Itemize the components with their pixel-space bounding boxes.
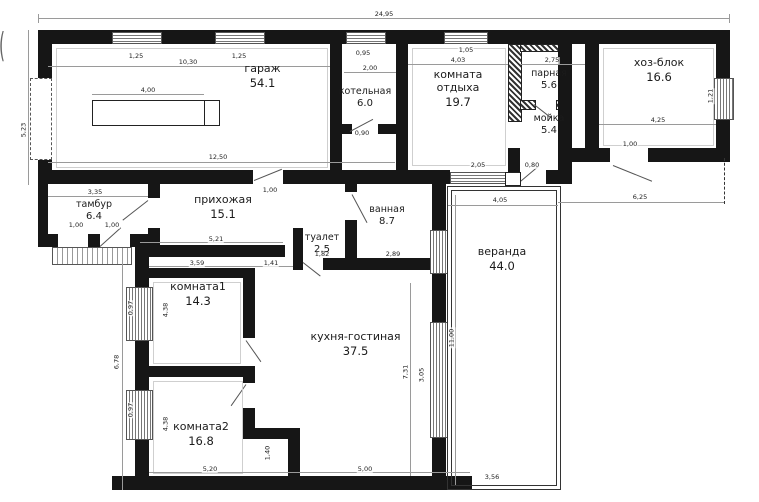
dim-label: 5,20 [202,466,218,473]
room-area: 2.5 [296,244,348,255]
wall-garage-right [330,44,342,184]
dim-label: 1,25 [128,53,144,60]
room-name: гараж [210,62,315,75]
dim-label: 0,97 [128,402,135,418]
wall-tambur-divider [148,184,160,198]
dim-label: 2,75 [544,57,560,64]
room-label-tambur: тамбур 6.4 [58,199,130,222]
dim-line [48,196,148,197]
wall-mid [283,170,450,184]
dim-label: 2,00 [362,65,378,72]
door-leaf [505,172,521,186]
door-swing [246,340,262,362]
wall-komnata2-step-v [288,439,300,482]
roof-overhang-dashed-line [724,158,725,204]
wall-mid [546,170,572,184]
room-name: туалет [296,232,348,243]
room-area: 5.4 [514,125,584,136]
room-name: комната1 [152,280,244,293]
room-area: 6.4 [58,211,130,222]
wall-parnaya-top-hatched [520,44,560,52]
wall-mid [38,170,253,184]
dim-label: 12,50 [208,154,229,161]
window [430,230,448,274]
dim-label: 11,00 [449,328,456,349]
dim-line [558,202,724,203]
arc-mark: ( [0,26,5,66]
dim-label: 0,95 [355,50,371,57]
dim-line [408,64,508,65]
dim-label: 4,25 [650,117,666,124]
window [346,32,386,44]
wall-komnata1-right [243,268,255,338]
room-area: 14.3 [152,294,244,308]
dim-label: 7,31 [403,364,410,380]
dim-label: 1,00 [622,141,638,148]
room-area: 16.6 [618,70,700,84]
room-label-boiler: котельная 6.0 [330,86,400,109]
dim-label: 1,05 [458,47,474,54]
dim-label: 2,05 [470,162,486,169]
dim-line [448,205,558,206]
dim-label: 4,05 [492,197,508,204]
dim-label: 1,40 [265,445,272,461]
room-label-moika: мойка 5.4 [514,113,584,136]
room-name: комната отдыха [422,68,494,94]
dim-tick [729,14,730,23]
room-name: веранда [464,245,540,258]
dim-label: 1,25 [231,53,247,60]
wall-tambur-bottom [88,234,100,247]
dim-line [122,252,123,490]
dim-label: 2,89 [385,251,401,258]
window [215,32,265,44]
dim-label: 4,00 [140,87,156,94]
garage-gate [30,78,52,160]
room-label-garage: гараж 54.1 [210,62,315,90]
dim-line [344,72,396,73]
wall-boiler-bottom [378,124,408,134]
room-label-rest: комната отдыха 19.7 [422,68,494,109]
window [430,322,448,438]
room-label-tualet: туалет 2.5 [296,232,348,255]
wall-komnata1-bottom [135,366,255,377]
dim-line [149,472,470,473]
dim-label: 10,30 [178,59,199,66]
window [714,78,734,120]
window [112,32,162,44]
wall-hozblok-left [585,44,599,148]
window [450,172,510,184]
room-name: котельная [330,86,400,97]
door-swing [303,262,321,276]
wall-komnata1-top [145,268,250,278]
room-name: тамбур [58,199,130,210]
room-name: хоз-блок [618,56,700,69]
dim-line [92,94,204,95]
wall-komnata2-step [243,428,300,439]
dim-label: 0,97 [128,300,135,316]
dim-line [38,18,730,19]
room-area: 37.5 [288,344,423,358]
wall-hozblok-bottom [572,148,610,162]
wall-tambur-bottom [38,234,58,247]
room-name: ванная [352,204,422,215]
dim-label: 6,78 [114,354,121,370]
room-name: прихожая [178,193,268,206]
dim-label: 3,35 [87,189,103,196]
room-name: комната2 [155,420,247,433]
room-label-hozblok: хоз-блок 16.6 [618,56,700,84]
room-label-vannaya: ванная 8.7 [352,204,422,227]
dim-line [48,162,395,163]
dim-line [28,30,29,185]
room-area: 5.6 [514,80,584,91]
room-label-veranda: веранда 44.0 [464,245,540,273]
room-name: кухня-гостиная [288,330,423,343]
wall-vannaya-left [345,184,357,192]
wall-hozblok-bottom [648,148,730,162]
room-label-prihozhaya: прихожая 15.1 [178,193,268,221]
room-label-komnata1: комната1 14.3 [152,280,244,308]
dim-tick [38,14,39,23]
wall-prihozhaya-bottom [135,245,285,257]
dim-label: 3,05 [419,367,426,383]
wall-tualet-bottom [293,258,303,270]
dim-label: 1,41 [263,260,279,267]
dim-label: 0,90 [354,130,370,137]
door-swing [613,165,652,182]
dim-line [410,283,411,476]
room-area: 16.8 [155,434,247,448]
dim-label: 1,00 [104,222,120,229]
dim-line [520,64,585,65]
dim-label: 4,03 [450,57,466,64]
window [444,32,488,44]
room-label-kuhnya: кухня-гостиная 37.5 [288,330,423,358]
dim-label: 6,25 [632,194,648,201]
room-area: 6.0 [330,98,400,109]
door-swing [254,169,282,181]
dim-line [599,124,716,125]
floor-plan: ( [0,0,759,502]
wall-boiler-bottom [330,124,352,134]
dim-label: 3,56 [484,474,500,481]
dim-label: 1,21 [708,88,715,104]
entrance-steps [52,247,132,265]
dim-label: 0,80 [524,162,540,169]
room-name: мойка [514,113,584,124]
room-area: 54.1 [210,76,315,90]
room-area: 15.1 [178,207,268,221]
door-swing [100,227,121,246]
room-name: парная [514,68,584,79]
dim-label: 5,21 [208,236,224,243]
room-area: 8.7 [352,216,422,227]
dim-label: 24,95 [374,11,395,18]
room-label-parnaya: парная 5.6 [514,68,584,91]
dim-label: 5,23 [21,122,28,138]
room-label-komnata2: комната2 16.8 [155,420,247,448]
dim-label: 5,00 [357,466,373,473]
veranda-outline-inner [451,190,557,486]
room-area: 44.0 [464,259,540,273]
dim-label: 3,59 [189,260,205,267]
dim-label: 1,00 [68,222,84,229]
wall-vannaya-bottom [323,258,445,270]
wall-komnata2-right [243,377,255,383]
room-area: 19.7 [422,95,494,109]
